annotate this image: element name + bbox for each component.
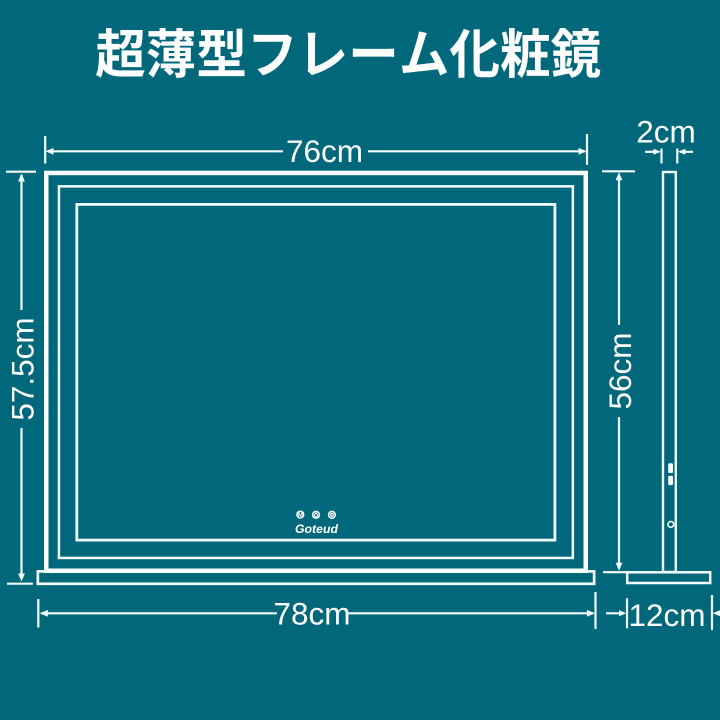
svg-text:12cm: 12cm: [628, 597, 705, 633]
svg-text:56cm: 56cm: [602, 332, 638, 409]
svg-text:Goteud: Goteud: [295, 522, 339, 536]
svg-text:78cm: 78cm: [273, 595, 350, 631]
svg-text:57.5cm: 57.5cm: [5, 317, 41, 420]
svg-text:2cm: 2cm: [636, 114, 696, 150]
svg-text:M: M: [298, 512, 303, 519]
svg-text:76cm: 76cm: [286, 133, 363, 169]
